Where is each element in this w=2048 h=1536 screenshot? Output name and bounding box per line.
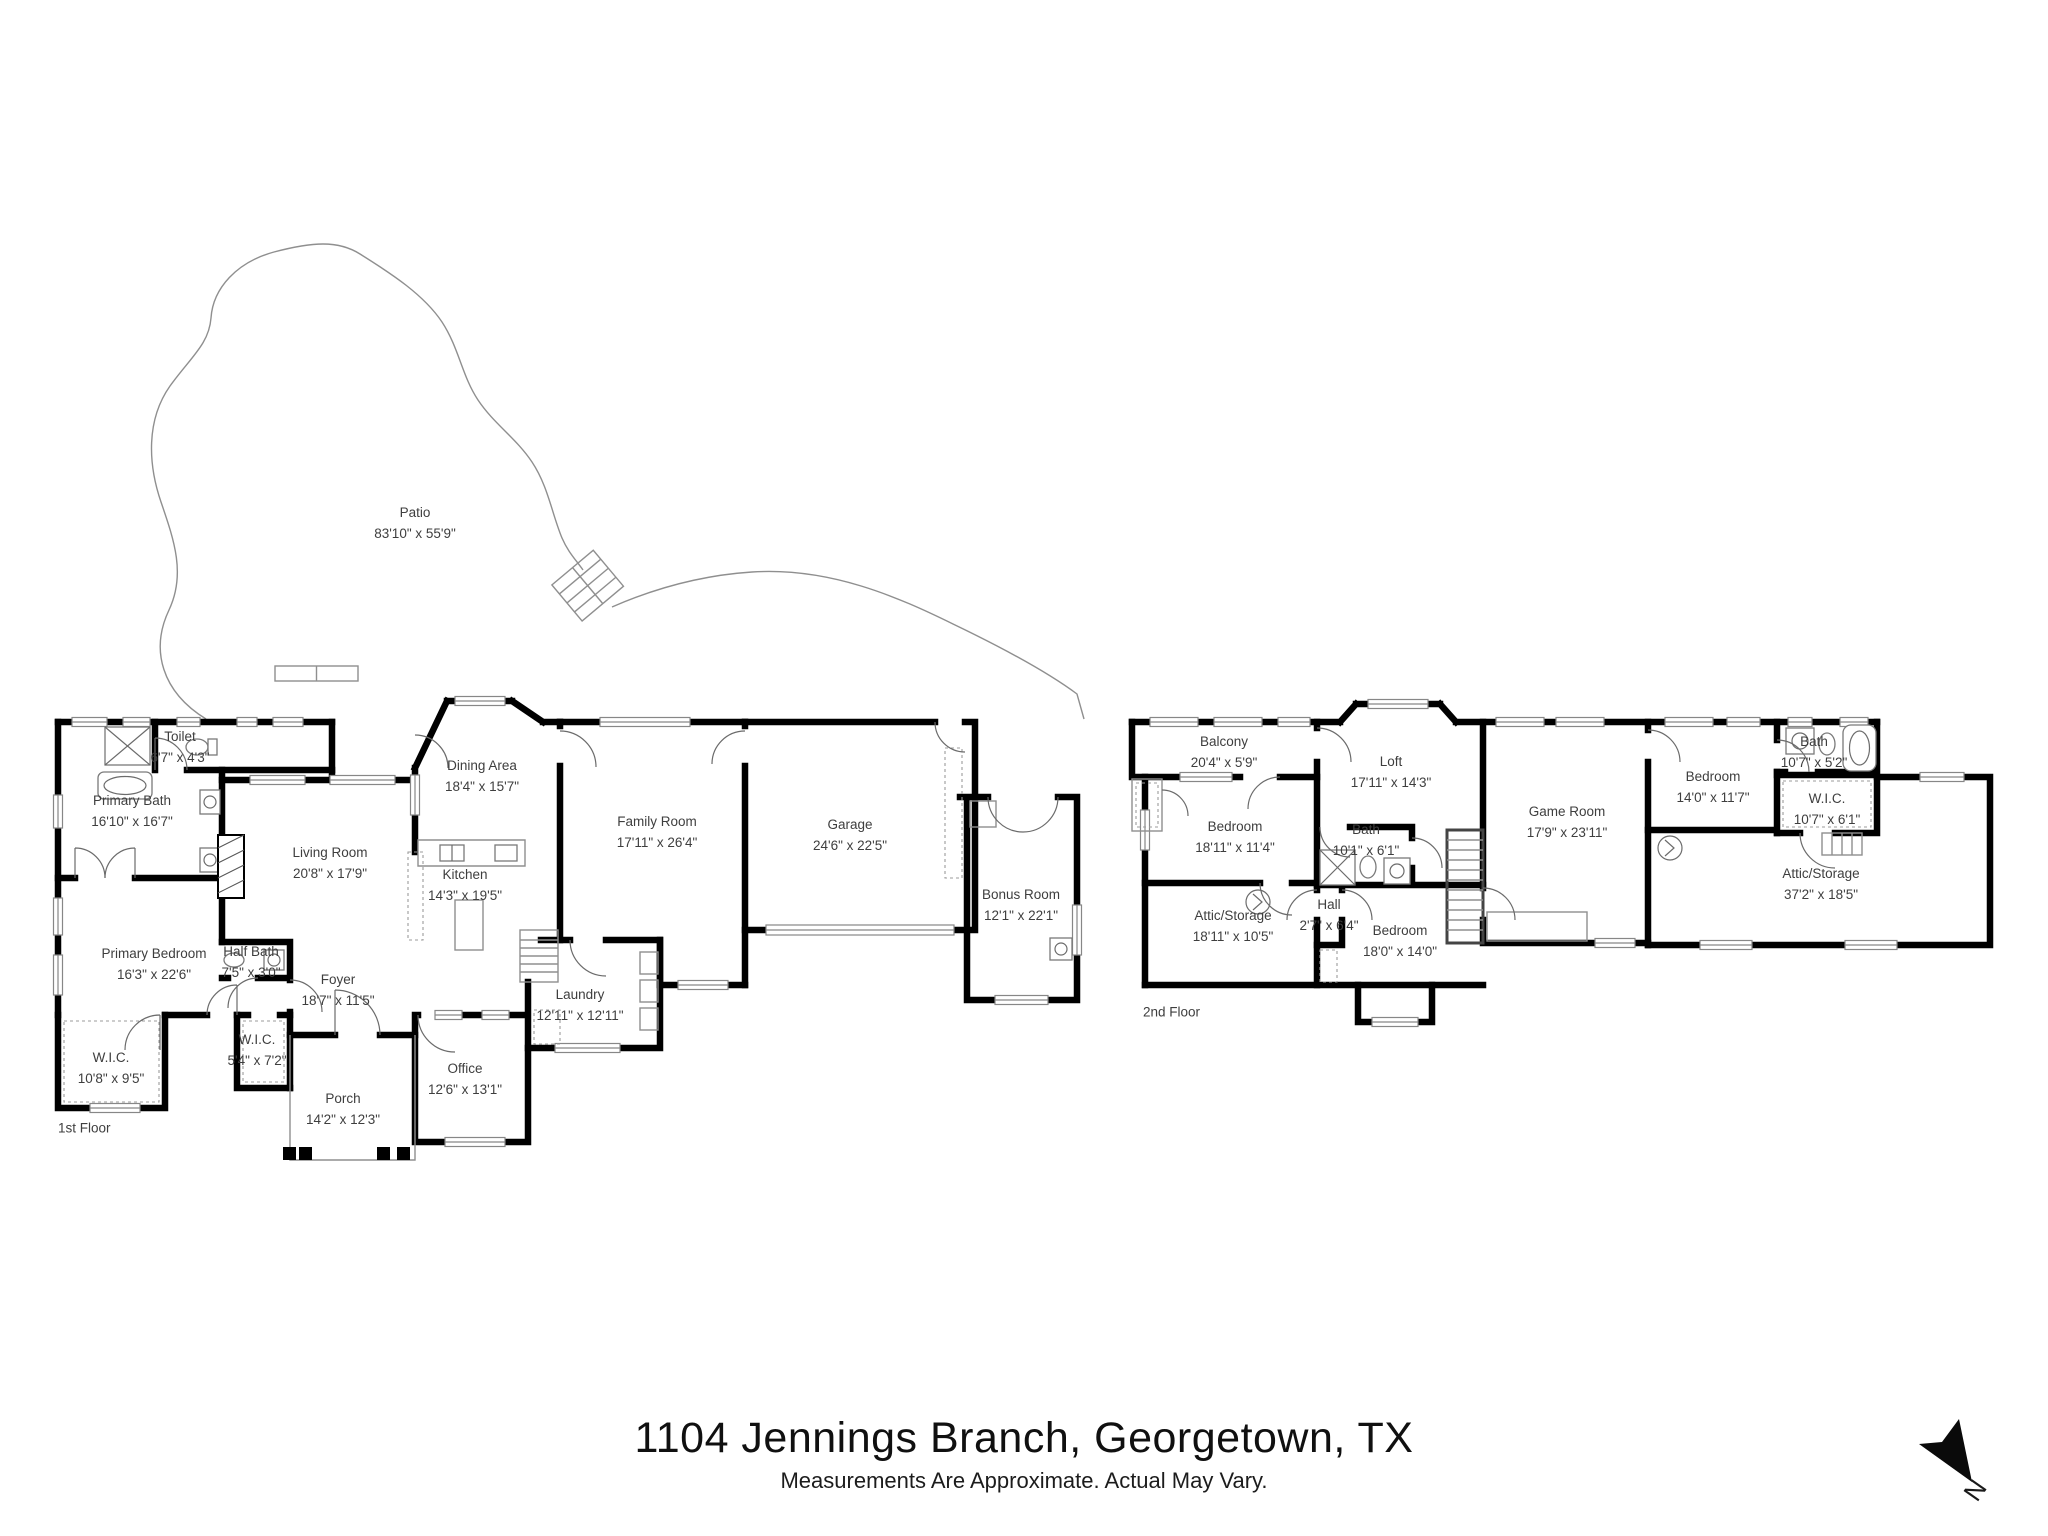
first-floor-fixtures — [64, 727, 1072, 1160]
ceiling-fan-icon — [1658, 836, 1682, 860]
second-floor-windows — [1141, 700, 1965, 1027]
fireplace — [218, 835, 244, 898]
floor-plan-page: N Patio83'10" x 55'9"Toilet6'7" x 4'3"Pr… — [0, 0, 2048, 1536]
planter-boxes — [275, 666, 358, 681]
first-floor-windows — [54, 697, 1082, 1147]
floor-plan-drawing: N — [0, 0, 2048, 1536]
address-title: 1104 Jennings Branch, Georgetown, TX — [0, 1414, 2048, 1463]
measurement-disclaimer: Measurements Are Approximate. Actual May… — [0, 1468, 2048, 1494]
patio-outline — [151, 244, 1084, 719]
deck-stairs — [552, 550, 624, 621]
first-floor-walls — [58, 701, 1077, 1142]
attic-ladder — [1822, 833, 1862, 855]
porch-outline — [283, 1035, 415, 1160]
